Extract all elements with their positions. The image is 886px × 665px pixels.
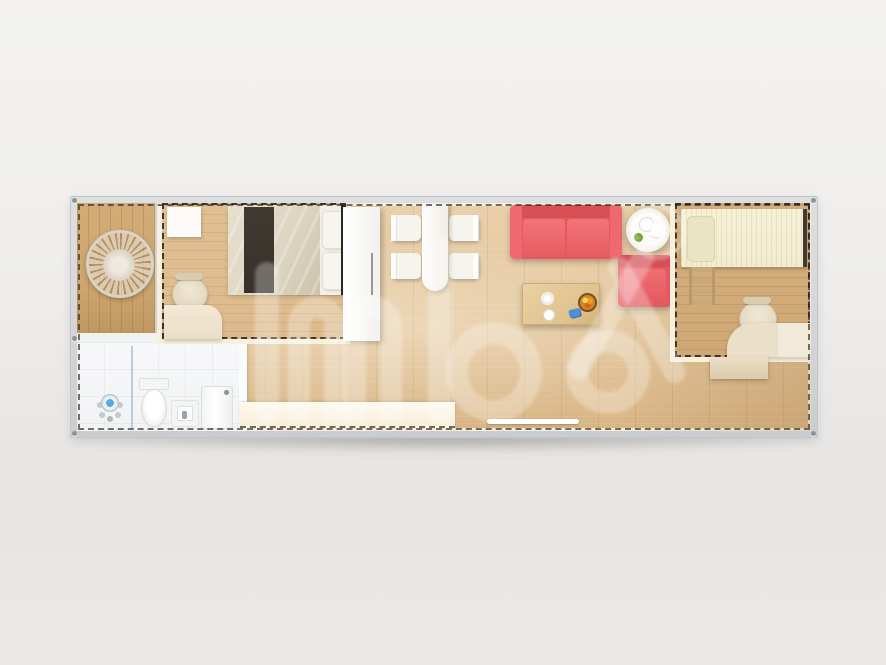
single-bed xyxy=(681,209,807,267)
shower-glass-screen xyxy=(131,346,133,428)
dining-chair xyxy=(391,215,421,241)
corner-fitting xyxy=(811,431,816,436)
chair-backrest xyxy=(743,297,771,304)
dining-chair xyxy=(391,253,421,279)
dining-chair xyxy=(449,253,479,279)
bed-frame xyxy=(803,209,807,267)
wardrobe-handle xyxy=(371,253,373,295)
container-frame xyxy=(70,196,818,438)
chair-backrest xyxy=(391,253,397,279)
armchair-cushion xyxy=(624,269,666,303)
bed-ladder xyxy=(689,267,715,305)
shower-set xyxy=(101,394,119,412)
duvet xyxy=(228,205,320,295)
cup xyxy=(543,309,555,321)
container-interior xyxy=(77,203,811,431)
storage-cabinet xyxy=(710,357,768,379)
floor-plan-scene: R xyxy=(0,0,886,665)
corner-fitting xyxy=(811,198,816,203)
sink-drain xyxy=(182,411,187,419)
sofa xyxy=(510,205,622,259)
double-bed xyxy=(228,205,346,295)
bathroom xyxy=(77,342,239,431)
armchair-backrest xyxy=(618,255,672,267)
pillow xyxy=(687,216,715,262)
master-bedroom xyxy=(162,203,346,339)
hanging-chair-seat xyxy=(103,249,135,281)
bed-runner xyxy=(244,207,274,293)
armchair xyxy=(618,255,672,307)
chair-backrest xyxy=(473,253,479,279)
kids-desk xyxy=(727,323,811,357)
wardrobe xyxy=(343,207,380,341)
chair-backrest xyxy=(473,215,479,241)
small-blue-object xyxy=(568,308,581,318)
potted-plant xyxy=(634,233,643,242)
kitchen-counter xyxy=(240,402,455,428)
plate xyxy=(541,292,554,305)
sofa-backrest xyxy=(510,205,622,218)
bedside-cabinet xyxy=(167,207,201,237)
chair-backrest xyxy=(175,273,203,280)
fruit-bowl xyxy=(578,293,597,312)
washing-machine xyxy=(201,386,233,429)
table-item xyxy=(650,223,663,238)
toilet xyxy=(141,389,167,427)
kids-bedroom xyxy=(675,203,810,357)
coffee-table xyxy=(522,283,600,325)
sofa-cushion xyxy=(567,219,609,257)
dining-table xyxy=(422,203,448,291)
chair-backrest xyxy=(391,215,397,241)
dining-chair xyxy=(449,215,479,241)
sofa-armrest xyxy=(610,205,622,259)
hanging-egg-chair xyxy=(86,230,154,298)
washer-knob xyxy=(224,390,229,395)
porch xyxy=(77,203,155,337)
corner-fitting xyxy=(72,431,77,436)
floor-sink xyxy=(171,400,199,427)
bedroom-desk xyxy=(164,305,222,339)
sofa-armrest xyxy=(510,205,522,259)
entrance-threshold xyxy=(487,419,579,424)
round-side-table xyxy=(626,208,670,252)
sofa-cushion xyxy=(523,219,565,257)
